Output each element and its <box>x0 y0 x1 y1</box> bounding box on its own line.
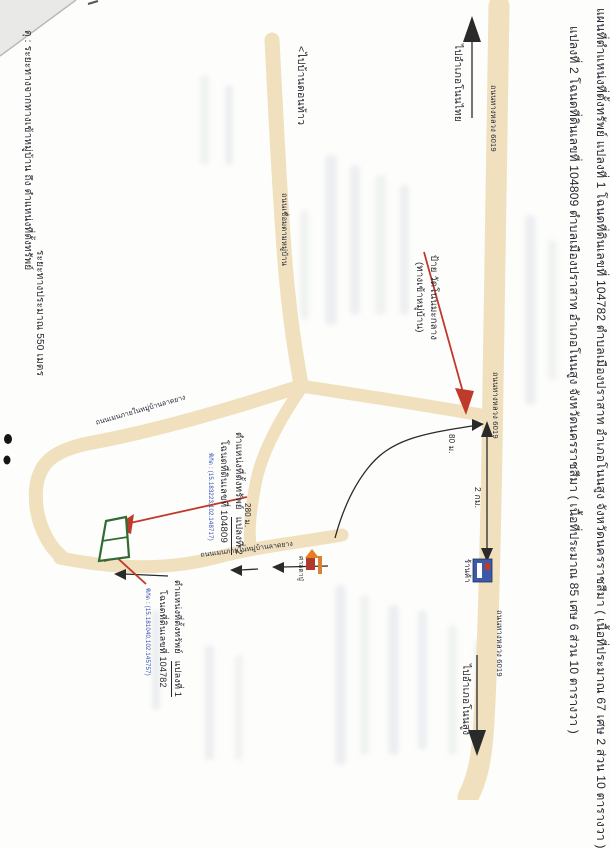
punch-holes <box>4 434 13 465</box>
property-parcel <box>99 517 129 561</box>
parcel2-label-line: ตำแหน่งที่ตั้งทรัพย์แปลงที่ 2 <box>234 432 244 555</box>
parcel2-label: ตำแหน่งที่ตั้งทรัพย์ <box>233 432 244 510</box>
parcel2-plot: แปลงที่ 2 <box>231 517 244 555</box>
highway-label-bottom: ถนนทางหลวง 6019 <box>496 610 504 677</box>
parcel1-label-line: ตำแหน่งที่ตั้งทรัพย์แปลงที่ 1 <box>173 580 182 697</box>
shop-icon <box>473 559 492 582</box>
parcel1-deed: โฉนดที่ดินเลขที่ 104782 <box>158 590 167 688</box>
roads <box>36 6 499 797</box>
parcel1-plot: แปลงที่ 1 <box>171 661 183 697</box>
direction-non-thai: ไปอำเภอโนนไทย <box>452 44 462 122</box>
junction-sign-line1: ป้าย วัดโนนมะกลาง <box>429 255 439 340</box>
page-title-line1: แผนที่ตำแหน่งที่ตั้งทรัพย์ แปลงที่ 1 โฉน… <box>595 8 607 849</box>
page-title-line2: แปลงที่ 2 โฉนดที่ดินเลขที่ 104809 ตำบลเม… <box>568 26 580 734</box>
connector-road-label: ถนนเชื่อมตามหมู่บ้าน <box>281 193 289 266</box>
scanned-map-page: { "title": { "line1": "แผนที่ตำแหน่งที่ต… <box>0 0 611 800</box>
page-fold <box>0 0 98 56</box>
highway-label-middle: ถนนทางหลวง 6019 <box>492 372 500 439</box>
road-access-east <box>301 386 481 415</box>
parcel2-deed: โฉนดที่ดินเลขที่ 104809 <box>219 440 229 543</box>
junction-sign-line2: (ทางเข้าหมู่บ้าน) <box>415 262 425 333</box>
parcel1-coordinates: พิกัด : (15.181040,102.145757) <box>144 588 150 676</box>
highway-label-top: ถนนทางหลวง 6019 <box>490 85 498 152</box>
note-line1: ตุ : ระยะทางจากทางเข้าหมู่บ้าน ถึง ตำแหน… <box>22 30 32 270</box>
distance-80m: 80 ม. <box>447 434 455 454</box>
distance-2km: 2 กม. <box>474 487 483 508</box>
direction-ban-don-thao: <ไปบ้านดอนท้าว <box>296 46 307 125</box>
parcel2-coordinates: พิกัด : (15.183223,102.148717) <box>207 453 213 541</box>
note-line2: ระยะทางประมาณ 550 เมตร <box>34 250 44 376</box>
parcel1-label: ตำแหน่งที่ตั้งทรัพย์ <box>173 580 183 654</box>
shrine-label: ศาลตาปู่ <box>297 556 304 581</box>
direction-non-sung: ไปอำเภอโนนสูง <box>460 664 470 735</box>
shrine-icon <box>305 549 322 574</box>
distance-280m: 280 ม. <box>243 503 251 527</box>
shop-label: ร้านค้า <box>464 559 472 583</box>
road-village-east <box>250 390 300 547</box>
